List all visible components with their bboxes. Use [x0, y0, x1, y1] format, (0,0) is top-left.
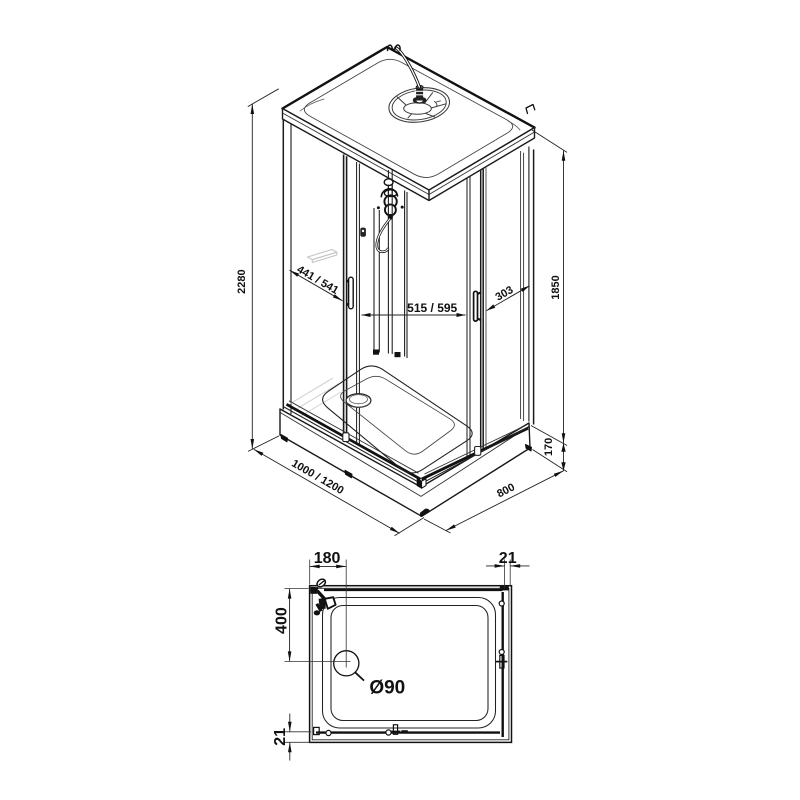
- svg-text:21: 21: [272, 728, 289, 746]
- svg-text:170: 170: [543, 438, 555, 456]
- svg-text:1850: 1850: [550, 275, 562, 299]
- svg-text:515 / 595: 515 / 595: [407, 301, 457, 315]
- svg-text:400: 400: [273, 607, 290, 634]
- svg-text:Ø90: Ø90: [369, 678, 405, 699]
- svg-text:2280: 2280: [236, 269, 248, 293]
- svg-text:21: 21: [499, 550, 517, 567]
- svg-text:180: 180: [314, 550, 341, 567]
